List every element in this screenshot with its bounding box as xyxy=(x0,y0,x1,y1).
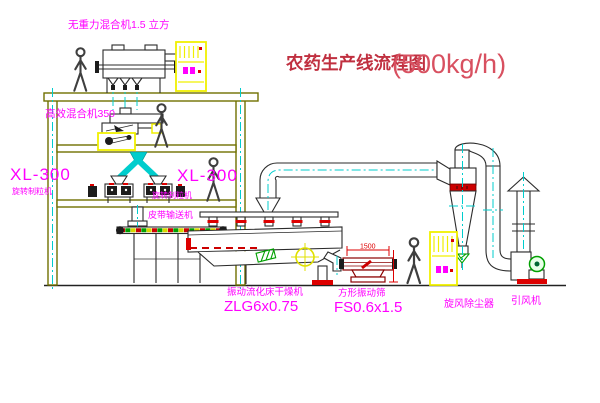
diagram-svg: 1500 无重力混合机1.5 立方 农药生产线流程图 (500kg/h) 高效混… xyxy=(0,0,600,403)
granulator-left-unit xyxy=(88,176,133,203)
label-granulator-left-name: 旋转制粒机 xyxy=(12,186,52,196)
feed-chute xyxy=(119,152,157,178)
label-top-mixer: 无重力混合机1.5 立方 xyxy=(68,18,170,31)
label-sieve-model: FS0.6x1.5 xyxy=(334,299,402,316)
label-high-eff-mixer: 高效混合机350 xyxy=(45,107,115,120)
label-dryer-name: 振动流化床干燥机 xyxy=(227,286,304,298)
induced-draft-fan xyxy=(511,252,547,284)
person-figure-second-floor xyxy=(155,104,167,146)
exhaust-duct xyxy=(256,161,450,212)
exhaust-stack xyxy=(508,172,539,258)
sieve-length-dimension: 1500 xyxy=(360,244,376,251)
down-pipe xyxy=(483,148,511,271)
label-sieve-name: 方形振动筛 xyxy=(338,287,386,299)
person-figure-ground xyxy=(408,238,421,283)
label-granulator-left-model: XL-300 xyxy=(10,165,71,184)
label-belt-conveyor: 皮带输送机 xyxy=(148,209,193,220)
diagram-title-capacity: (500kg/h) xyxy=(392,49,506,79)
control-cabinet-lower xyxy=(430,232,457,285)
control-cabinet-upper xyxy=(176,42,206,91)
label-granulator-right-model: XL-300 xyxy=(177,166,238,185)
pesticide-line-flow-diagram: 1500 无重力混合机1.5 立方 农药生产线流程图 (500kg/h) 高效混… xyxy=(0,0,600,403)
fluid-bed-dryer xyxy=(186,212,342,285)
label-fan: 引风机 xyxy=(511,294,541,307)
label-granulator-right-name: 旋转制粒机 xyxy=(152,190,192,200)
label-dryer-model: ZLG6x0.75 xyxy=(224,298,298,315)
person-figure-top-floor xyxy=(74,48,86,90)
drop-pipe xyxy=(128,205,147,228)
label-cyclone: 旋风除尘器 xyxy=(444,297,494,310)
square-vibrating-sieve: 1500 xyxy=(339,244,398,283)
